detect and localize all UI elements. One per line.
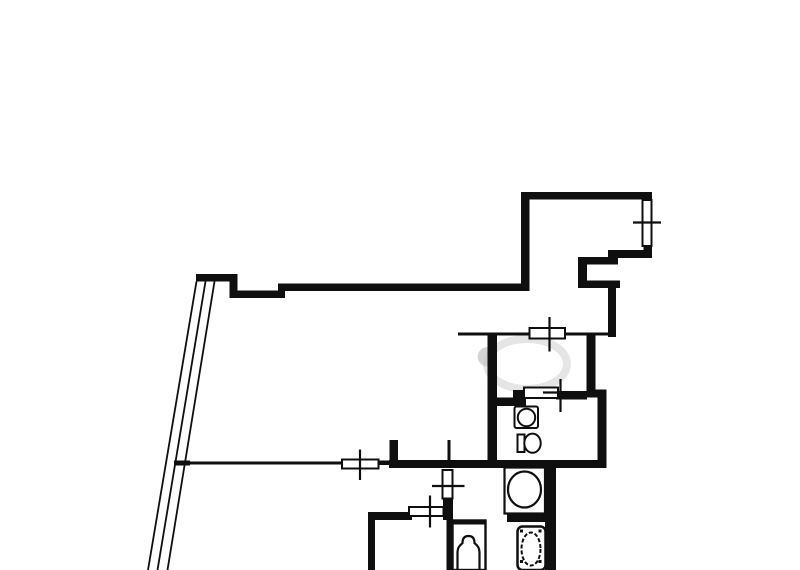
wall-left-stub [196,274,235,282]
bathtub-inner [458,536,480,570]
wall-right-lower [598,390,607,469]
laundry-corner-tl [520,530,523,533]
laundry-corner-bl [520,560,523,563]
wall-door-stub [390,440,399,464]
wall-closet-right [587,335,596,392]
watermark-ring [487,339,567,389]
fixtures [453,407,546,570]
thinwall-stub [448,440,451,462]
window-symbols [342,200,661,528]
glazing-line-2 [158,282,206,570]
wall-roomA-top [521,192,652,200]
wall-blroom-left [368,512,375,570]
wall-notch [233,291,281,299]
laundry-corner-tr [539,530,542,533]
floor-plan-drawing [0,0,800,570]
window-plate-vertical [443,470,453,499]
glazing-line-3 [168,282,215,570]
window-plate-blroom [409,507,444,516]
thinwall-bottom-left [175,462,343,465]
wall-washer-bar [507,515,546,523]
glazing-line-1 [148,282,197,570]
floorplan-page [0,0,800,570]
washing-machine-drum [508,472,541,508]
wall-bottom-main [389,460,606,468]
laundry-unit-basin [522,533,541,566]
sink-bowl [518,409,535,426]
wall-roomA-left [521,192,530,291]
window-plate-closet [530,328,566,339]
wall-hall-right-upper [608,281,616,338]
wall-main-top [281,284,530,292]
toilet-bowl [524,434,540,453]
wall-wc-top [488,398,516,407]
thinwall-inner-a [458,333,532,336]
thinwall-inner-b [563,333,610,336]
balcony-glazing [148,282,215,570]
laundry-corner-br [539,560,542,563]
watermark-half-disc [478,347,488,367]
